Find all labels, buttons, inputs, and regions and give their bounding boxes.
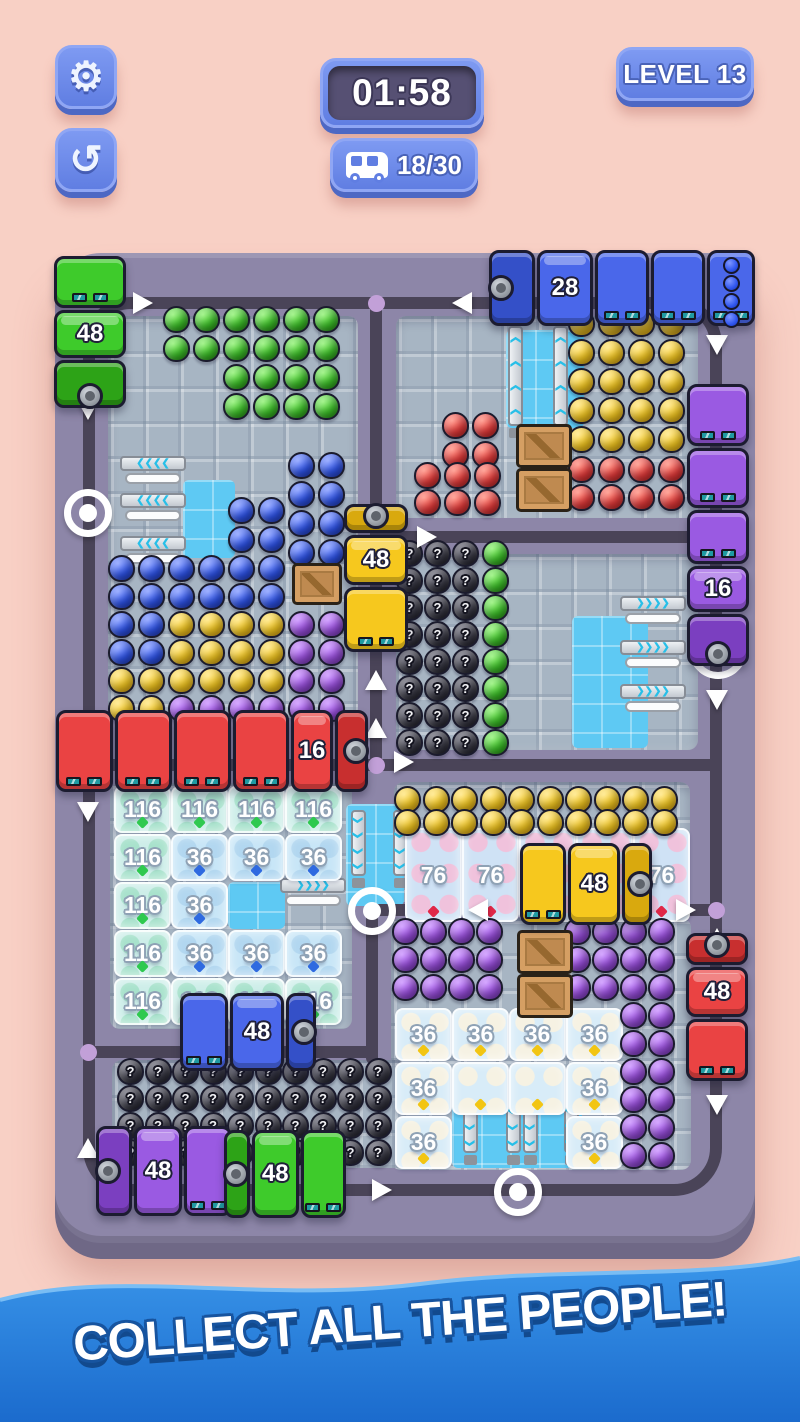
person-k: ? bbox=[255, 1085, 282, 1112]
ice-block-76: 76 bbox=[405, 828, 462, 922]
bus-capacity-label: 48 bbox=[77, 320, 104, 348]
question-mark: ? bbox=[347, 1118, 355, 1133]
person-p bbox=[620, 1030, 647, 1057]
window-icon bbox=[87, 777, 102, 786]
road-arrow-r bbox=[372, 1179, 392, 1201]
window-icon bbox=[721, 549, 736, 558]
person-y bbox=[568, 397, 595, 424]
ice-block-116: 116 bbox=[114, 834, 171, 881]
bus-icon bbox=[346, 152, 388, 178]
ice-block-value: 116 bbox=[181, 796, 218, 823]
window-icon bbox=[186, 1056, 201, 1065]
ice-block-36: 36 bbox=[285, 930, 342, 977]
person-g bbox=[482, 729, 509, 756]
ice-block-value: 36 bbox=[411, 1129, 437, 1156]
ice-block-value: 36 bbox=[187, 844, 213, 871]
window-icon bbox=[305, 1203, 320, 1212]
person-k: ? bbox=[282, 1085, 309, 1112]
conveyor-chevrons: ❮❮❮❮ bbox=[553, 326, 568, 426]
person-y bbox=[568, 368, 595, 395]
conveyor-foot bbox=[352, 878, 365, 888]
window-icon bbox=[93, 293, 108, 302]
wooden-crate bbox=[517, 930, 573, 974]
person-k: ? bbox=[396, 675, 423, 702]
bus-engine-segment bbox=[54, 360, 126, 408]
ice-block-36: 36 bbox=[171, 930, 228, 977]
question-mark: ? bbox=[374, 1145, 382, 1160]
person-y bbox=[651, 809, 678, 836]
ice-block-value: 36 bbox=[468, 1021, 494, 1048]
engine-nose bbox=[291, 1019, 317, 1045]
ice-block-value: 36 bbox=[301, 844, 327, 871]
window-icon bbox=[699, 1066, 714, 1075]
game-screen: { "hud": { "timer": "01:58", "level": "L… bbox=[0, 0, 800, 1422]
person-y bbox=[622, 809, 649, 836]
road-arrow-r bbox=[133, 292, 153, 314]
road-arrow-u bbox=[365, 670, 387, 690]
bus-capacity-label: 16 bbox=[705, 575, 732, 603]
person-y bbox=[537, 809, 564, 836]
bus-cab-segment: 48 bbox=[134, 1126, 182, 1216]
wooden-crate bbox=[517, 974, 573, 1018]
bus-engine-segment bbox=[286, 993, 316, 1071]
person-k: ? bbox=[365, 1058, 392, 1085]
person-y bbox=[423, 809, 450, 836]
question-mark: ? bbox=[237, 1091, 245, 1106]
wagon-windows bbox=[700, 431, 736, 440]
engine-nose bbox=[704, 932, 730, 958]
person-r bbox=[658, 484, 685, 511]
bus-load-segment bbox=[707, 250, 755, 326]
question-mark: ? bbox=[319, 1091, 327, 1106]
conveyor-chevrons: ❯❯❯❯ bbox=[620, 684, 686, 699]
conveyor-foot bbox=[464, 1155, 477, 1165]
window-icon bbox=[720, 1066, 735, 1075]
conveyor-up: ❮❮❮❮ bbox=[506, 326, 524, 438]
road-arrow-r bbox=[417, 526, 437, 548]
person-g bbox=[163, 306, 190, 333]
junction-ring bbox=[64, 489, 112, 537]
person-y bbox=[628, 426, 655, 453]
person-b bbox=[228, 497, 255, 524]
bus-counter: 18/30 bbox=[330, 138, 478, 192]
person-p bbox=[648, 974, 675, 1001]
person-b bbox=[288, 481, 315, 508]
ice-block-36: 36 bbox=[566, 1062, 623, 1115]
bus-purple-right[interactable]: 16 bbox=[687, 384, 749, 666]
bus-engine-segment bbox=[335, 710, 368, 792]
bus-blue-lower-left[interactable]: 48 bbox=[180, 993, 316, 1071]
person-y bbox=[658, 339, 685, 366]
person-r bbox=[444, 462, 471, 489]
conveyor-chevrons: ❮❮❮❮ bbox=[120, 456, 186, 471]
engine-nose bbox=[95, 1158, 121, 1184]
person-p bbox=[288, 611, 315, 638]
level-badge: LEVEL 13 bbox=[616, 47, 754, 101]
question-mark: ? bbox=[434, 681, 442, 696]
person-p bbox=[648, 1030, 675, 1057]
question-mark: ? bbox=[154, 1091, 162, 1106]
person-k: ? bbox=[424, 567, 451, 594]
person-y bbox=[168, 667, 195, 694]
wagon-windows bbox=[660, 311, 696, 320]
person-b bbox=[318, 539, 345, 566]
ice-block-36: 36 bbox=[452, 1008, 509, 1061]
window-icon bbox=[700, 549, 715, 558]
bus-green-bottom[interactable]: 48 bbox=[224, 1130, 346, 1218]
person-b bbox=[228, 526, 255, 553]
person-k: ? bbox=[452, 567, 479, 594]
person-g bbox=[482, 567, 509, 594]
bus-wagon-segment bbox=[115, 710, 172, 792]
window-icon bbox=[205, 777, 220, 786]
person-g bbox=[313, 306, 340, 333]
window-icon bbox=[525, 910, 540, 919]
person-g bbox=[482, 675, 509, 702]
bus-engine-segment bbox=[489, 250, 535, 326]
wagon-windows bbox=[72, 293, 108, 302]
question-mark: ? bbox=[182, 1091, 190, 1106]
question-mark: ? bbox=[406, 735, 414, 750]
bus-wagon-segment bbox=[180, 993, 228, 1071]
engine-nose bbox=[488, 275, 514, 301]
ice-block-116: 116 bbox=[114, 882, 171, 929]
person-y bbox=[198, 611, 225, 638]
bus-cab-segment: 48 bbox=[54, 310, 126, 358]
conveyor-tray bbox=[625, 657, 680, 668]
bus-wagon-segment bbox=[233, 710, 290, 792]
ice-block-116: 116 bbox=[114, 930, 171, 977]
bus-yellow-center[interactable]: 48 bbox=[344, 504, 408, 652]
person-p bbox=[448, 918, 475, 945]
question-mark: ? bbox=[127, 1091, 135, 1106]
person-y bbox=[258, 611, 285, 638]
question-mark: ? bbox=[462, 735, 470, 750]
person-r bbox=[628, 484, 655, 511]
bus-red-train[interactable]: 16 bbox=[56, 710, 368, 792]
person-y bbox=[228, 667, 255, 694]
ice-block-value: 116 bbox=[124, 844, 161, 871]
person-k: ? bbox=[452, 594, 479, 621]
conveyor-left: ❮❮❮❮ bbox=[120, 493, 186, 525]
gear-icon: ⚙ bbox=[68, 57, 104, 97]
person-g bbox=[482, 621, 509, 648]
conveyor-down: ❮❮❮❮ bbox=[349, 810, 367, 888]
person-b bbox=[168, 555, 195, 582]
ice-block-value: 36 bbox=[244, 940, 270, 967]
wagon-windows bbox=[184, 777, 220, 786]
person-y bbox=[594, 809, 621, 836]
person-b bbox=[288, 539, 315, 566]
person-y bbox=[168, 611, 195, 638]
person-y bbox=[394, 809, 421, 836]
person-y bbox=[658, 368, 685, 395]
ice-block-value: 76 bbox=[478, 862, 504, 889]
person-p bbox=[648, 1058, 675, 1085]
person-p bbox=[648, 1086, 675, 1113]
person-p bbox=[476, 946, 503, 973]
window-icon bbox=[184, 777, 199, 786]
question-mark: ? bbox=[154, 1064, 162, 1079]
person-r bbox=[598, 484, 625, 511]
window-icon bbox=[146, 777, 161, 786]
road-arrow-d bbox=[77, 802, 99, 822]
window-icon bbox=[72, 293, 87, 302]
bus-red-right[interactable]: 48 bbox=[686, 933, 748, 1081]
person-g bbox=[253, 335, 280, 362]
person-g bbox=[283, 306, 310, 333]
question-mark: ? bbox=[462, 654, 470, 669]
bus-wagon-segment bbox=[687, 448, 749, 508]
engine-nose bbox=[705, 641, 731, 667]
person-p bbox=[620, 1002, 647, 1029]
person-k: ? bbox=[452, 675, 479, 702]
window-icon bbox=[326, 1203, 341, 1212]
person-y bbox=[598, 368, 625, 395]
conveyor-chevrons: ❯❯❯❯ bbox=[620, 596, 686, 611]
person-p bbox=[288, 667, 315, 694]
question-mark: ? bbox=[406, 654, 414, 669]
person-b bbox=[198, 583, 225, 610]
person-y bbox=[628, 397, 655, 424]
bottom-banner: COLLECT ALL THE PEOPLE! bbox=[0, 1246, 800, 1422]
person-p bbox=[476, 918, 503, 945]
bus-capacity-label: 48 bbox=[244, 1018, 271, 1046]
person-p bbox=[648, 918, 675, 945]
person-b bbox=[108, 583, 135, 610]
ice-block-116: 116 bbox=[114, 786, 171, 833]
conveyor-chevrons: ❯❯❯❯ bbox=[620, 640, 686, 655]
person-y bbox=[598, 426, 625, 453]
person-y bbox=[258, 667, 285, 694]
ice-block-36: 36 bbox=[395, 1116, 452, 1169]
ice-block-value: 36 bbox=[411, 1075, 437, 1102]
engine-nose bbox=[363, 503, 389, 529]
person-r bbox=[472, 412, 499, 439]
bus-yellow-mid-right[interactable]: 48 bbox=[520, 843, 652, 925]
bus-cab-segment: 48 bbox=[252, 1130, 299, 1218]
engine-nose bbox=[343, 738, 369, 764]
person-k: ? bbox=[145, 1085, 172, 1112]
question-mark: ? bbox=[347, 1145, 355, 1160]
undo-button[interactable]: ↺ bbox=[55, 128, 117, 192]
person-k: ? bbox=[452, 540, 479, 567]
road-arrow-d bbox=[706, 690, 728, 710]
person-r bbox=[444, 489, 471, 516]
person-g bbox=[193, 335, 220, 362]
person-k: ? bbox=[200, 1085, 227, 1112]
person-g bbox=[313, 335, 340, 362]
question-mark: ? bbox=[374, 1118, 382, 1133]
person-k: ? bbox=[452, 648, 479, 675]
person-p bbox=[288, 639, 315, 666]
person-g bbox=[253, 306, 280, 333]
conveyor-left: ❮❮❮❮ bbox=[120, 456, 186, 488]
wagon-windows bbox=[125, 777, 161, 786]
question-mark: ? bbox=[374, 1091, 382, 1106]
person-g bbox=[223, 306, 250, 333]
question-mark: ? bbox=[462, 573, 470, 588]
person-g bbox=[223, 364, 250, 391]
person-b bbox=[138, 639, 165, 666]
ice-block-value: 36 bbox=[582, 1129, 608, 1156]
conveyor-chevrons: ❮❮❮❮ bbox=[120, 493, 186, 508]
junction-dot bbox=[368, 757, 385, 774]
bus-wagon-segment bbox=[651, 250, 705, 326]
question-mark: ? bbox=[319, 1064, 327, 1079]
question-mark: ? bbox=[462, 546, 470, 561]
question-mark: ? bbox=[434, 627, 442, 642]
conveyor-foot bbox=[524, 1155, 537, 1165]
window-icon bbox=[207, 1056, 222, 1065]
wooden-crate bbox=[516, 468, 572, 512]
person-y bbox=[598, 339, 625, 366]
person-b bbox=[228, 583, 255, 610]
person-b bbox=[258, 497, 285, 524]
bus-capacity-label: 48 bbox=[704, 978, 731, 1006]
bus-capacity-label: 48 bbox=[262, 1160, 289, 1188]
conveyor-chevrons: ❮❮❮❮ bbox=[351, 810, 366, 876]
game-board: ❮❮❮❮❮❮❮❮❮❮❮❮❮❮❮❮❮❮❮❮❯❯❯❯❯❯❯❯❯❯❯❯❯❯❯❯❮❮❮❮… bbox=[55, 253, 755, 1243]
window-icon bbox=[125, 777, 140, 786]
person-p bbox=[620, 946, 647, 973]
person-g bbox=[253, 364, 280, 391]
person-k: ? bbox=[424, 675, 451, 702]
level-label: LEVEL 13 bbox=[623, 59, 746, 90]
person-p bbox=[620, 974, 647, 1001]
person-r bbox=[568, 484, 595, 511]
window-icon bbox=[625, 311, 640, 320]
bus-engine-segment bbox=[687, 614, 749, 666]
person-g bbox=[313, 393, 340, 420]
bus-wagon-segment bbox=[520, 843, 566, 925]
person-g bbox=[193, 306, 220, 333]
person-b bbox=[168, 583, 195, 610]
question-mark: ? bbox=[462, 600, 470, 615]
person-k: ? bbox=[172, 1085, 199, 1112]
conveyor-tray bbox=[125, 510, 180, 521]
bus-cab-segment: 16 bbox=[291, 710, 332, 792]
ice-block-116: 116 bbox=[285, 786, 342, 833]
window-icon bbox=[66, 777, 81, 786]
person-p bbox=[620, 1142, 647, 1169]
bus-wagon-segment bbox=[301, 1130, 346, 1218]
window-icon bbox=[700, 493, 715, 502]
bus-green-top-left[interactable]: 48 bbox=[54, 256, 126, 408]
ice-block-116: 116 bbox=[114, 978, 171, 1025]
person-b bbox=[288, 452, 315, 479]
bus-wagon-segment bbox=[686, 1019, 748, 1081]
person-k: ? bbox=[424, 621, 451, 648]
ice-block-36: 36 bbox=[228, 930, 285, 977]
person-b bbox=[228, 555, 255, 582]
window-icon bbox=[264, 777, 279, 786]
person-g bbox=[283, 364, 310, 391]
bus-cab-segment: 48 bbox=[568, 843, 620, 925]
person-k: ? bbox=[365, 1085, 392, 1112]
conveyor-chevrons: ❮❮❮❮ bbox=[508, 326, 523, 426]
window-icon bbox=[681, 311, 696, 320]
person-g bbox=[283, 393, 310, 420]
ice-block-value: 116 bbox=[124, 892, 161, 919]
ice-block-36: 36 bbox=[566, 1116, 623, 1169]
person-y bbox=[508, 809, 535, 836]
question-mark: ? bbox=[434, 573, 442, 588]
person-p bbox=[448, 946, 475, 973]
person-b bbox=[138, 583, 165, 610]
person-p bbox=[620, 1058, 647, 1085]
ice-block-value: 36 bbox=[582, 1021, 608, 1048]
person-g bbox=[223, 393, 250, 420]
person-k: ? bbox=[117, 1085, 144, 1112]
person-b bbox=[258, 526, 285, 553]
ice-block-36: 36 bbox=[171, 882, 228, 929]
person-g bbox=[283, 335, 310, 362]
bus-engine-segment bbox=[224, 1130, 250, 1218]
person-k: ? bbox=[227, 1085, 254, 1112]
question-mark: ? bbox=[406, 708, 414, 723]
conveyor-tray bbox=[125, 473, 180, 484]
person-r bbox=[474, 489, 501, 516]
person-p bbox=[318, 611, 345, 638]
person-k: ? bbox=[424, 594, 451, 621]
question-mark: ? bbox=[434, 600, 442, 615]
person-r bbox=[568, 456, 595, 483]
bus-wagon-segment bbox=[56, 710, 113, 792]
person-r bbox=[598, 456, 625, 483]
wagon-windows bbox=[66, 777, 102, 786]
junction-ring bbox=[348, 887, 396, 935]
ice-block-value: 116 bbox=[124, 940, 161, 967]
engine-nose bbox=[223, 1161, 249, 1187]
ice-block-116: 116 bbox=[228, 786, 285, 833]
bus-blue-top[interactable]: 28 bbox=[489, 250, 755, 326]
person-k: ? bbox=[396, 702, 423, 729]
bus-engine-segment bbox=[96, 1126, 132, 1216]
ice-block-value: 36 bbox=[244, 844, 270, 871]
person-b bbox=[198, 555, 225, 582]
person-p bbox=[648, 1142, 675, 1169]
bus-purple-bottom[interactable]: 48 bbox=[96, 1126, 232, 1216]
conveyor-right: ❯❯❯❯ bbox=[620, 684, 686, 716]
person-r bbox=[414, 462, 441, 489]
bus-wagon-segment bbox=[595, 250, 649, 326]
junction-dot bbox=[80, 1044, 97, 1061]
ice-block-value: 36 bbox=[187, 892, 213, 919]
bus-capacity-label: 48 bbox=[145, 1157, 172, 1185]
person-p bbox=[476, 974, 503, 1001]
person-b bbox=[138, 555, 165, 582]
ice-block bbox=[452, 1062, 509, 1115]
person-y bbox=[198, 667, 225, 694]
person-p bbox=[620, 1086, 647, 1113]
bus-engine-segment bbox=[622, 843, 652, 925]
conveyor-foot bbox=[507, 1155, 520, 1165]
ice-block-value: 116 bbox=[238, 796, 275, 823]
person-r bbox=[442, 412, 469, 439]
person-p bbox=[420, 946, 447, 973]
wagon-windows bbox=[699, 1066, 735, 1075]
question-mark: ? bbox=[347, 1064, 355, 1079]
settings-button[interactable]: ⚙ bbox=[55, 45, 117, 109]
wagon-windows bbox=[243, 777, 279, 786]
ice-block-36: 36 bbox=[395, 1008, 452, 1061]
person-p bbox=[392, 946, 419, 973]
ice-block-value: 116 bbox=[124, 796, 161, 823]
window-icon bbox=[700, 431, 715, 440]
person-p bbox=[648, 1114, 675, 1141]
person-g bbox=[482, 648, 509, 675]
